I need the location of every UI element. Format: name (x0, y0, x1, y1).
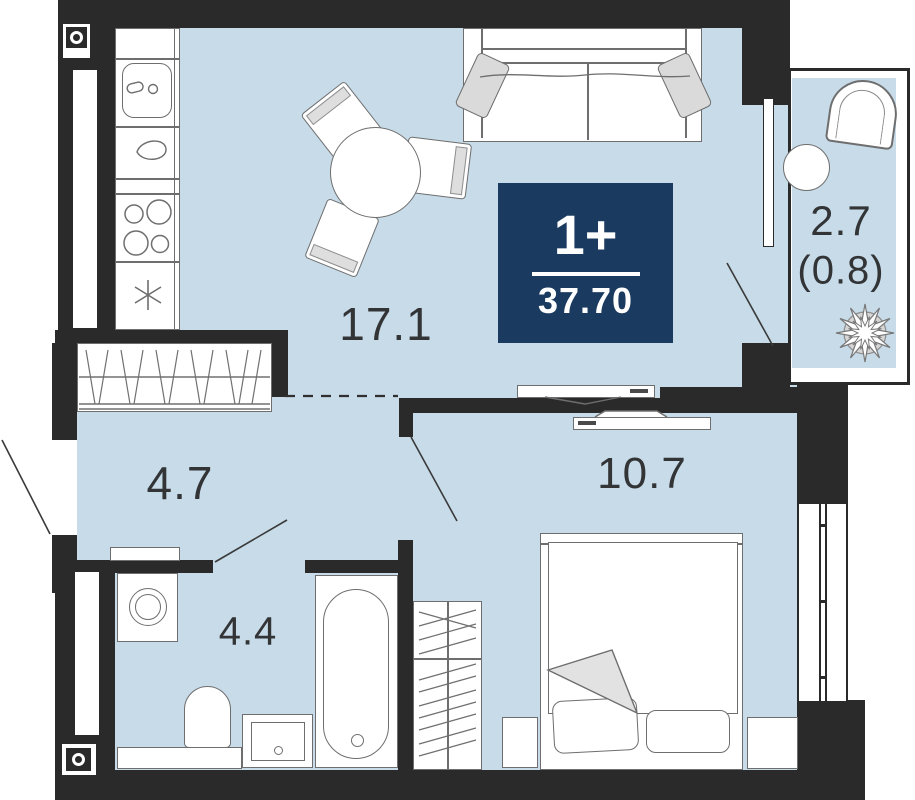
entrance-doorway-gap (52, 437, 77, 537)
wall-segment-right-upper (797, 385, 848, 505)
shaft-marker-box (63, 24, 90, 58)
wall-segment-door-stub (399, 398, 413, 437)
wall-segment-bathroom-top (305, 560, 410, 573)
wall-segment (272, 343, 288, 397)
wall-segment (660, 387, 797, 413)
living-kitchen-area-label: 17.1 (339, 297, 433, 351)
hallway-area-label: 4.7 (147, 456, 214, 510)
wall-segment-balcony-column (742, 0, 790, 105)
kitchen-sink (122, 63, 172, 118)
balcony-table (783, 144, 830, 191)
wall-segment-bathroom-right (398, 540, 413, 770)
shaft-marker-icon (66, 748, 91, 771)
apartment-badge: 1+ 37.70 (498, 183, 673, 343)
apartment-total-area: 37.70 (538, 283, 633, 319)
hallway-wardrobe (77, 343, 272, 412)
toilet (184, 686, 231, 748)
balcony-area-label: 2.7 (810, 197, 871, 245)
apartment-type-label: 1+ (554, 207, 618, 263)
bed-blanket (548, 542, 738, 714)
shaft-marker-icon (66, 27, 87, 48)
wall-segment (742, 343, 790, 387)
bed-pillow (552, 697, 640, 754)
bedroom-area-label: 10.7 (597, 449, 687, 499)
nightstand (502, 717, 538, 768)
wall-segment (55, 330, 288, 343)
bed-pillow (646, 710, 730, 753)
hallway-shelf (110, 547, 180, 561)
wall-segment (52, 343, 77, 440)
outside-area (848, 385, 915, 703)
outside-area (788, 0, 915, 68)
bathroom-area-label: 4.4 (219, 610, 278, 655)
wall-segment-bottom (55, 770, 865, 800)
wall-shaft (75, 572, 99, 735)
dining-table (330, 127, 421, 218)
wall-segment-top (58, 0, 790, 28)
tv-bedroom (573, 417, 711, 430)
floor-plan: 17.1 4.7 4.4 10.7 2.7 (0.8) 1+ 37.70 (0, 0, 915, 800)
badge-divider (532, 272, 640, 276)
bathroom-bench (117, 747, 242, 769)
bedroom-wardrobe (413, 601, 482, 770)
bathtub (315, 575, 398, 768)
entrance-door-swing (2, 440, 50, 534)
balcony-glazing (763, 98, 774, 247)
tv-living-room (517, 385, 655, 398)
bedroom-window (797, 502, 848, 703)
wall-shaft (73, 70, 97, 328)
nightstand (747, 717, 798, 769)
washing-machine (117, 573, 178, 642)
balcony-coefficient-label: (0.8) (797, 249, 884, 294)
vanity-sink (242, 714, 313, 768)
shaft-marker-box (62, 744, 96, 775)
outside-area (865, 703, 915, 800)
